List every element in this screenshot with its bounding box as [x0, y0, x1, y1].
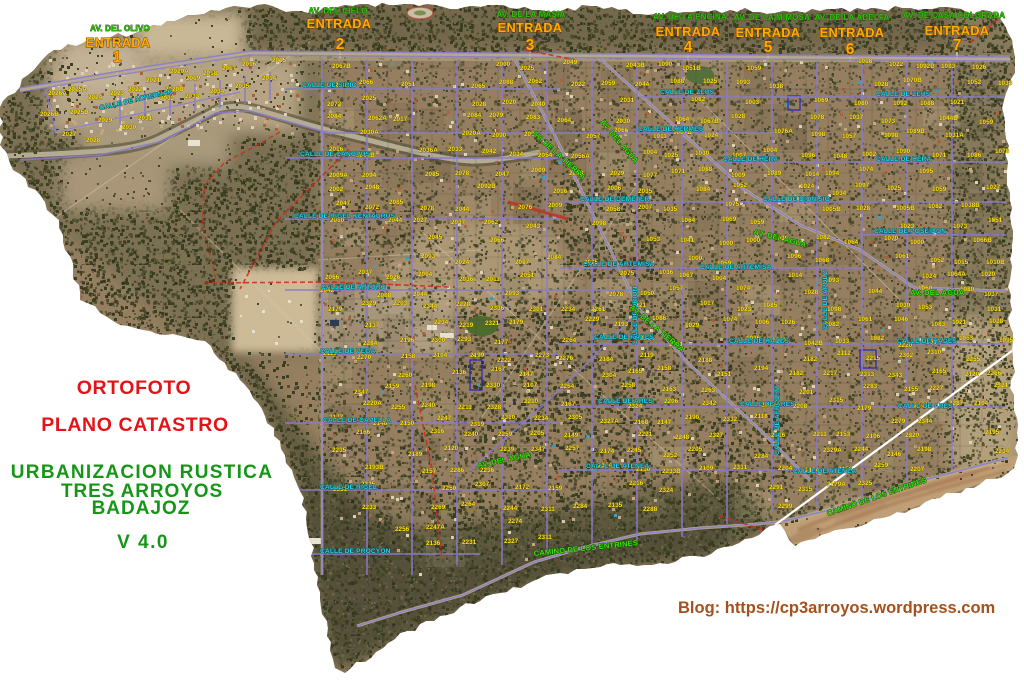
svg-text:2305: 2305 [568, 414, 583, 421]
svg-text:2159: 2159 [548, 485, 563, 492]
svg-text:2066: 2066 [325, 274, 340, 281]
svg-text:1000: 1000 [910, 239, 925, 246]
svg-text:1000: 1000 [688, 255, 703, 262]
svg-text:1000: 1000 [746, 237, 761, 244]
svg-text:1061: 1061 [895, 253, 910, 260]
svg-text:CALLE DE CANOPUS: CALLE DE CANOPUS [300, 151, 371, 158]
svg-text:2201: 2201 [799, 389, 814, 396]
svg-text:2210: 2210 [524, 398, 539, 405]
svg-text:1093: 1093 [736, 79, 751, 86]
svg-text:2331: 2331 [733, 464, 748, 471]
svg-text:2206: 2206 [664, 398, 679, 405]
svg-text:2065: 2065 [471, 83, 486, 90]
svg-text:2163: 2163 [662, 386, 677, 393]
svg-text:2024: 2024 [88, 94, 103, 101]
svg-text:2085: 2085 [425, 171, 440, 178]
svg-text:2233B: 2233B [662, 468, 681, 475]
svg-text:CALLE DE PROCYON: CALLE DE PROCYON [320, 548, 391, 555]
svg-text:2093: 2093 [505, 290, 520, 297]
svg-text:1088: 1088 [670, 78, 685, 85]
svg-text:CALLE DE HADES: CALLE DE HADES [594, 334, 654, 341]
svg-text:1024: 1024 [800, 183, 815, 190]
svg-text:URBANIZACION RUSTICA: URBANIZACION RUSTICA [11, 462, 273, 483]
svg-text:2347: 2347 [354, 389, 369, 396]
svg-text:1097: 1097 [855, 182, 870, 189]
svg-text:1024: 1024 [922, 273, 937, 280]
svg-text:2313: 2313 [860, 371, 875, 378]
svg-text:2066: 2066 [490, 237, 505, 244]
svg-text:1014: 1014 [805, 171, 820, 178]
svg-text:2179A: 2179A [827, 481, 846, 488]
svg-text:1064A: 1064A [947, 271, 966, 278]
svg-text:2020A: 2020A [170, 68, 189, 75]
svg-text:1068: 1068 [815, 257, 830, 264]
svg-text:1084: 1084 [696, 186, 711, 193]
svg-text:2025B: 2025B [70, 109, 89, 116]
svg-text:1080: 1080 [854, 100, 869, 107]
svg-text:CALLE DE POSEIDON: CALLE DE POSEIDON [874, 228, 946, 235]
svg-text:2017: 2017 [222, 65, 237, 72]
svg-text:1004: 1004 [763, 147, 778, 154]
svg-text:2057: 2057 [586, 133, 601, 140]
svg-text:2193B: 2193B [365, 464, 384, 471]
svg-text:2135: 2135 [608, 502, 623, 509]
svg-text:2106: 2106 [866, 433, 881, 440]
svg-text:1051: 1051 [988, 217, 1003, 224]
svg-text:2293: 2293 [457, 336, 472, 343]
svg-text:2244: 2244 [503, 505, 518, 512]
svg-text:1002: 1002 [862, 151, 877, 158]
svg-text:2239: 2239 [500, 446, 515, 453]
svg-text:2078: 2078 [609, 291, 624, 298]
svg-text:1082: 1082 [816, 234, 831, 241]
svg-text:2062: 2062 [484, 219, 499, 226]
svg-text:2042: 2042 [482, 148, 497, 155]
svg-text:CALLE DE APOLO: CALLE DE APOLO [822, 270, 829, 330]
svg-text:2264: 2264 [461, 501, 476, 508]
svg-text:1041: 1041 [680, 237, 695, 244]
svg-text:2321: 2321 [485, 320, 500, 327]
svg-text:CALLE DE RIGEL: CALLE DE RIGEL [320, 484, 377, 491]
svg-text:2076: 2076 [518, 204, 533, 211]
svg-text:2247A: 2247A [426, 524, 445, 531]
svg-text:2090: 2090 [492, 132, 507, 139]
svg-text:2019: 2019 [186, 75, 201, 82]
svg-text:2327: 2327 [504, 538, 519, 545]
svg-text:2087: 2087 [515, 259, 530, 266]
svg-text:2: 2 [336, 36, 345, 53]
svg-text:CALLE DE HADES: CALLE DE HADES [729, 338, 789, 345]
svg-text:1021: 1021 [952, 319, 967, 326]
svg-text:CALLE DE ZEUS: CALLE DE ZEUS [876, 91, 931, 98]
svg-text:2136: 2136 [426, 540, 441, 547]
svg-text:2220A: 2220A [363, 400, 382, 407]
svg-text:1028: 1028 [804, 289, 819, 296]
svg-text:1011: 1011 [653, 133, 667, 140]
svg-text:2155: 2155 [904, 386, 919, 393]
svg-text:2255: 2255 [391, 404, 406, 411]
svg-text:CALLE DE HERA: CALLE DE HERA [876, 156, 932, 163]
svg-text:2056A: 2056A [571, 153, 590, 160]
svg-text:PLANO CATASTRO: PLANO CATASTRO [41, 414, 229, 436]
svg-text:1005B: 1005B [896, 205, 915, 212]
svg-text:2299: 2299 [778, 503, 793, 510]
svg-text:1082: 1082 [870, 335, 885, 342]
svg-text:1092: 1092 [893, 100, 908, 107]
svg-text:2261: 2261 [591, 306, 606, 313]
svg-text:2240: 2240 [421, 402, 436, 409]
svg-text:2284: 2284 [363, 340, 378, 347]
svg-text:2343: 2343 [888, 372, 903, 379]
svg-text:2315: 2315 [829, 397, 844, 404]
svg-text:1024: 1024 [704, 132, 719, 139]
svg-text:2015: 2015 [272, 57, 287, 64]
svg-text:2025: 2025 [520, 65, 535, 72]
svg-text:2189: 2189 [408, 451, 423, 458]
svg-text:2044: 2044 [413, 291, 428, 298]
svg-text:1078: 1078 [810, 114, 825, 121]
svg-text:1088: 1088 [698, 166, 713, 173]
svg-text:2316: 2316 [430, 428, 445, 435]
svg-text:2327: 2327 [709, 432, 724, 439]
svg-text:2030A: 2030A [360, 129, 379, 136]
svg-text:2234: 2234 [995, 448, 1010, 455]
svg-text:2014: 2014 [262, 75, 277, 82]
svg-text:2190: 2190 [685, 414, 700, 421]
svg-text:1095: 1095 [999, 337, 1014, 344]
svg-text:2211: 2211 [813, 431, 827, 438]
svg-text:CALLE DE RIGEL KENTAURUS: CALLE DE RIGEL KENTAURUS [294, 213, 396, 220]
svg-text:2000: 2000 [496, 61, 511, 68]
svg-text:2149: 2149 [564, 432, 579, 439]
svg-text:2240: 2240 [464, 431, 479, 438]
svg-text:2119: 2119 [640, 352, 654, 359]
svg-text:2231: 2231 [462, 539, 477, 546]
svg-text:CALLE DE ATENEA: CALLE DE ATENEA [793, 468, 857, 475]
svg-text:2255: 2255 [966, 356, 981, 363]
svg-text:2177: 2177 [494, 339, 509, 346]
svg-text:2094: 2094 [362, 172, 377, 179]
svg-text:AV. DE LA MASIA: AV. DE LA MASIA [497, 10, 566, 19]
svg-text:CALLE DE ATENEA: CALLE DE ATENEA [586, 463, 650, 470]
svg-text:2319: 2319 [470, 421, 485, 428]
svg-text:2009: 2009 [548, 202, 563, 209]
svg-text:1005B: 1005B [822, 206, 841, 213]
svg-text:2235: 2235 [332, 447, 347, 454]
svg-text:1074: 1074 [723, 316, 738, 323]
svg-text:CALLE DE ARES: CALLE DE ARES [740, 401, 795, 408]
svg-text:2344: 2344 [423, 303, 438, 310]
svg-text:1028: 1028 [731, 113, 746, 120]
svg-text:1051B: 1051B [682, 65, 701, 72]
svg-text:2274: 2274 [508, 518, 523, 525]
svg-text:1067: 1067 [679, 272, 694, 279]
svg-text:2036: 2036 [459, 276, 474, 283]
svg-text:2336: 2336 [490, 305, 505, 312]
svg-text:2221: 2221 [638, 431, 653, 438]
svg-text:2245: 2245 [627, 447, 642, 454]
svg-text:2043: 2043 [526, 223, 541, 230]
svg-text:2084: 2084 [467, 112, 482, 119]
svg-text:CALLE DE SIRIO: CALLE DE SIRIO [302, 82, 357, 89]
svg-text:2035: 2035 [638, 188, 653, 195]
svg-text:CALLE DE AFRODITA: CALLE DE AFRODITA [774, 384, 781, 455]
svg-text:2205: 2205 [530, 430, 545, 437]
svg-text:1082: 1082 [928, 203, 943, 210]
svg-text:1096: 1096 [787, 253, 802, 260]
svg-text:2018: 2018 [203, 70, 218, 77]
svg-text:1044: 1044 [868, 288, 883, 295]
svg-text:2229: 2229 [585, 316, 600, 323]
svg-text:1078: 1078 [995, 148, 1010, 155]
svg-text:1064: 1064 [675, 116, 690, 123]
svg-text:2302: 2302 [899, 352, 914, 359]
svg-text:2276: 2276 [559, 355, 574, 362]
svg-text:1077: 1077 [643, 172, 658, 179]
svg-text:1096: 1096 [801, 152, 816, 159]
svg-text:1052: 1052 [967, 79, 982, 86]
svg-text:2179: 2179 [857, 405, 872, 412]
svg-text:1006: 1006 [755, 319, 770, 326]
svg-text:2266: 2266 [987, 370, 1002, 377]
svg-text:1083: 1083 [931, 321, 946, 328]
svg-text:2024: 2024 [455, 259, 470, 266]
svg-text:2258: 2258 [621, 382, 636, 389]
svg-text:2329A: 2329A [823, 447, 842, 454]
svg-text:2273: 2273 [535, 352, 550, 359]
svg-text:1030: 1030 [896, 302, 911, 309]
svg-text:2011: 2011 [486, 276, 500, 283]
svg-text:2196: 2196 [400, 337, 415, 344]
svg-text:1098: 1098 [827, 306, 842, 313]
svg-text:2026B: 2026B [40, 111, 59, 118]
svg-text:2021: 2021 [146, 77, 161, 84]
svg-text:2270: 2270 [357, 354, 372, 361]
svg-text:1030: 1030 [695, 150, 710, 157]
svg-text:2004: 2004 [418, 271, 433, 278]
svg-text:1089B: 1089B [906, 128, 925, 135]
svg-text:2283: 2283 [863, 383, 878, 390]
svg-text:2033: 2033 [185, 93, 200, 100]
svg-text:2028: 2028 [472, 101, 487, 108]
svg-text:AV. DEL AGUA: AV. DEL AGUA [910, 288, 965, 297]
svg-text:2093: 2093 [421, 253, 436, 260]
svg-text:2151: 2151 [717, 371, 732, 378]
svg-text:1076A: 1076A [774, 128, 793, 135]
svg-text:2182: 2182 [803, 356, 818, 363]
svg-text:1086: 1086 [967, 152, 982, 159]
svg-text:1064: 1064 [844, 239, 859, 246]
svg-text:2137: 2137 [365, 322, 380, 329]
svg-text:CALLE DE HERMES: CALLE DE HERMES [638, 126, 704, 133]
svg-text:1092B: 1092B [916, 63, 935, 70]
svg-text:2078: 2078 [420, 205, 435, 212]
svg-text:1057: 1057 [842, 133, 857, 140]
svg-text:2067B: 2067B [332, 63, 351, 70]
svg-text:2150: 2150 [400, 420, 415, 427]
svg-text:CALLE DE ARES: CALLE DE ARES [598, 398, 653, 405]
svg-text:2072: 2072 [327, 101, 342, 108]
svg-text:1025: 1025 [703, 78, 718, 85]
svg-text:1071: 1071 [671, 168, 686, 175]
svg-text:1023: 1023 [737, 306, 752, 313]
svg-text:2207: 2207 [910, 466, 925, 473]
svg-text:1031: 1031 [987, 306, 1002, 313]
svg-text:1037: 1037 [984, 291, 999, 298]
svg-text:AV. DEL CIELO: AV. DEL CIELO [308, 7, 367, 16]
svg-text:ENTRADA: ENTRADA [307, 16, 372, 31]
svg-text:1028: 1028 [856, 205, 871, 212]
svg-text:2120: 2120 [965, 371, 980, 378]
svg-text:BADAJOZ: BADAJOZ [92, 498, 191, 519]
svg-text:1098: 1098 [884, 132, 899, 139]
svg-text:2291: 2291 [769, 484, 784, 491]
svg-text:CALLE DE VEGA: CALLE DE VEGA [320, 348, 376, 355]
svg-text:2022: 2022 [128, 86, 143, 93]
svg-text:2188: 2188 [698, 357, 713, 364]
svg-text:1066B: 1066B [973, 237, 992, 244]
svg-text:2029: 2029 [98, 117, 113, 124]
svg-text:2037: 2037 [451, 219, 466, 226]
svg-text:2045: 2045 [428, 234, 443, 241]
svg-text:2259: 2259 [498, 431, 513, 438]
svg-text:2311: 2311 [541, 506, 555, 513]
svg-text:2264: 2264 [562, 337, 577, 344]
svg-text:2047: 2047 [495, 171, 510, 178]
svg-text:CALLE DE HERA: CALLE DE HERA [723, 156, 779, 163]
svg-text:2168: 2168 [634, 419, 649, 426]
svg-text:2344: 2344 [918, 418, 933, 425]
svg-text:1090: 1090 [658, 61, 673, 68]
svg-text:2025: 2025 [362, 95, 377, 102]
svg-text:2193: 2193 [614, 321, 629, 328]
svg-text:2311: 2311 [538, 534, 552, 541]
svg-text:1064: 1064 [681, 217, 696, 224]
svg-text:2199: 2199 [470, 352, 485, 359]
svg-text:1067B: 1067B [700, 118, 719, 125]
svg-text:2194: 2194 [754, 365, 769, 372]
svg-text:1022: 1022 [889, 61, 904, 68]
svg-text:2347: 2347 [531, 446, 546, 453]
svg-text:1059: 1059 [979, 119, 994, 126]
svg-text:1053: 1053 [646, 236, 661, 243]
svg-text:2159: 2159 [385, 383, 400, 390]
svg-text:1059: 1059 [750, 219, 765, 226]
svg-text:AV. DE LA ADELFA: AV. DE LA ADELFA [814, 13, 889, 22]
svg-text:2083: 2083 [526, 114, 541, 121]
svg-text:2184: 2184 [599, 356, 614, 363]
svg-text:V 4.0: V 4.0 [117, 532, 169, 553]
svg-text:2320: 2320 [905, 432, 920, 439]
svg-text:2179: 2179 [509, 319, 524, 326]
svg-text:2198: 2198 [917, 446, 932, 453]
svg-text:ENTRADA: ENTRADA [656, 24, 721, 39]
svg-text:2033: 2033 [448, 146, 463, 153]
svg-text:2167: 2167 [561, 401, 576, 408]
svg-text:CALLE DE ARTEMISA: CALLE DE ARTEMISA [583, 261, 655, 268]
svg-text:2066: 2066 [359, 79, 374, 86]
svg-text:AV. DE LA MIMOSA: AV. DE LA MIMOSA [734, 13, 810, 22]
svg-text:2023: 2023 [110, 90, 125, 97]
svg-text:AV. DE LA ENCINA: AV. DE LA ENCINA [653, 13, 727, 22]
svg-text:2112: 2112 [837, 350, 851, 357]
svg-text:2301: 2301 [529, 306, 544, 313]
svg-text:2027: 2027 [62, 131, 77, 138]
svg-text:2205: 2205 [688, 446, 703, 453]
svg-text:2104: 2104 [433, 352, 448, 359]
svg-text:1073: 1073 [881, 118, 896, 125]
svg-text:1017: 1017 [700, 300, 715, 307]
svg-text:1004: 1004 [712, 275, 727, 282]
svg-text:CALLE DE ARES: CALLE DE ARES [898, 403, 953, 410]
svg-text:2233: 2233 [362, 504, 377, 511]
svg-text:1009: 1009 [731, 172, 746, 179]
svg-text:1095: 1095 [919, 168, 934, 175]
svg-text:2146: 2146 [887, 451, 902, 458]
svg-text:2257: 2257 [565, 445, 580, 452]
svg-text:2017: 2017 [393, 116, 408, 123]
svg-text:2342: 2342 [702, 400, 717, 407]
svg-text:2269: 2269 [431, 504, 446, 511]
svg-text:1003: 1003 [745, 99, 760, 106]
svg-text:CALLE DE DIONISIO: CALLE DE DIONISIO [763, 196, 830, 203]
svg-text:2247: 2247 [437, 415, 452, 422]
svg-text:2084: 2084 [327, 113, 342, 120]
svg-text:2234: 2234 [534, 415, 549, 422]
svg-text:2234: 2234 [434, 319, 449, 326]
svg-text:2002: 2002 [329, 186, 344, 193]
svg-text:2324: 2324 [659, 487, 674, 494]
svg-text:2025A: 2025A [68, 86, 87, 93]
svg-text:2022: 2022 [571, 81, 586, 88]
svg-text:1027: 1027 [986, 184, 1001, 191]
svg-text:2165: 2165 [628, 368, 643, 375]
svg-text:2279: 2279 [891, 418, 906, 425]
svg-text:ENTRADA: ENTRADA [498, 20, 563, 35]
svg-text:ENTRADA: ENTRADA [86, 35, 151, 50]
svg-text:1020: 1020 [981, 271, 996, 278]
svg-text:2008: 2008 [377, 292, 392, 299]
svg-text:1074: 1074 [859, 166, 874, 173]
svg-text:2104: 2104 [974, 400, 989, 407]
svg-text:2284: 2284 [754, 453, 769, 460]
svg-text:2288: 2288 [643, 506, 658, 513]
svg-text:1048: 1048 [833, 153, 848, 160]
svg-text:1075: 1075 [725, 201, 740, 208]
svg-text:2037: 2037 [358, 269, 373, 276]
svg-text:2211: 2211 [458, 404, 472, 411]
svg-text:1029: 1029 [685, 322, 700, 329]
svg-text:2216: 2216 [629, 480, 644, 487]
svg-text:1082: 1082 [691, 96, 706, 103]
svg-text:2222: 2222 [497, 357, 512, 364]
svg-text:1015: 1015 [954, 259, 969, 266]
svg-text:AV. DEL OLIVO: AV. DEL OLIVO [90, 24, 150, 33]
svg-text:ORTOFOTO: ORTOFOTO [77, 377, 192, 399]
svg-text:2310: 2310 [501, 414, 516, 421]
svg-text:Blog: https://cp3arroyos.wordp: Blog: https://cp3arroyos.wordpress.com [678, 599, 995, 617]
svg-text:CALLE DE CAPELLA: CALLE DE CAPELLA [323, 417, 391, 424]
svg-text:1014: 1014 [788, 272, 803, 279]
svg-text:1074: 1074 [736, 285, 751, 292]
svg-text:1063: 1063 [959, 335, 974, 342]
svg-text:CALLE DE ARTEMISA: CALLE DE ARTEMISA [700, 264, 772, 271]
svg-text:2029: 2029 [610, 170, 625, 177]
svg-text:2026: 2026 [386, 274, 401, 281]
svg-text:1000: 1000 [719, 240, 734, 247]
svg-text:ENTRADA: ENTRADA [925, 23, 990, 38]
svg-text:1046: 1046 [894, 316, 909, 323]
